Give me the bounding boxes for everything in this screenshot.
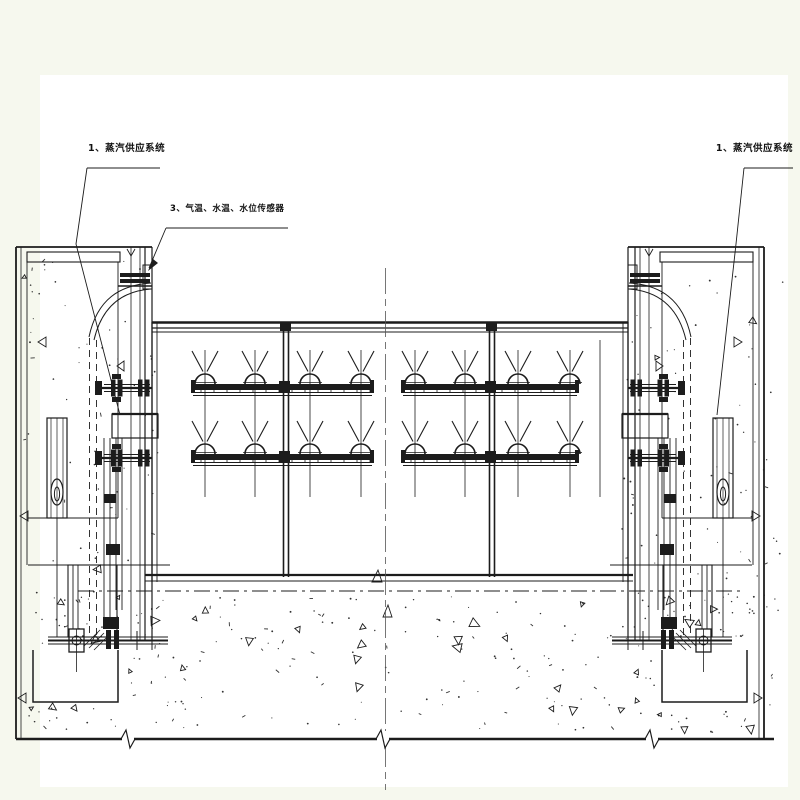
label-steam-supply-right: 1、蒸汽供应系统	[716, 142, 793, 154]
drawing-page: 1、蒸汽供应系统 3、气温、水温、水位传感器 1、蒸汽供应系统	[0, 0, 800, 800]
elevation-mark-icon	[18, 693, 26, 703]
bolt-cluster	[104, 494, 116, 503]
label-sensors: 3、气温、水温、水位传感器	[170, 203, 284, 214]
engineering-drawing: 1、蒸汽供应系统 3、气温、水温、水位传感器 1、蒸汽供应系统	[0, 0, 800, 800]
label-steam-supply-left: 1、蒸汽供应系统	[88, 142, 165, 154]
bolt-cluster	[106, 544, 120, 555]
